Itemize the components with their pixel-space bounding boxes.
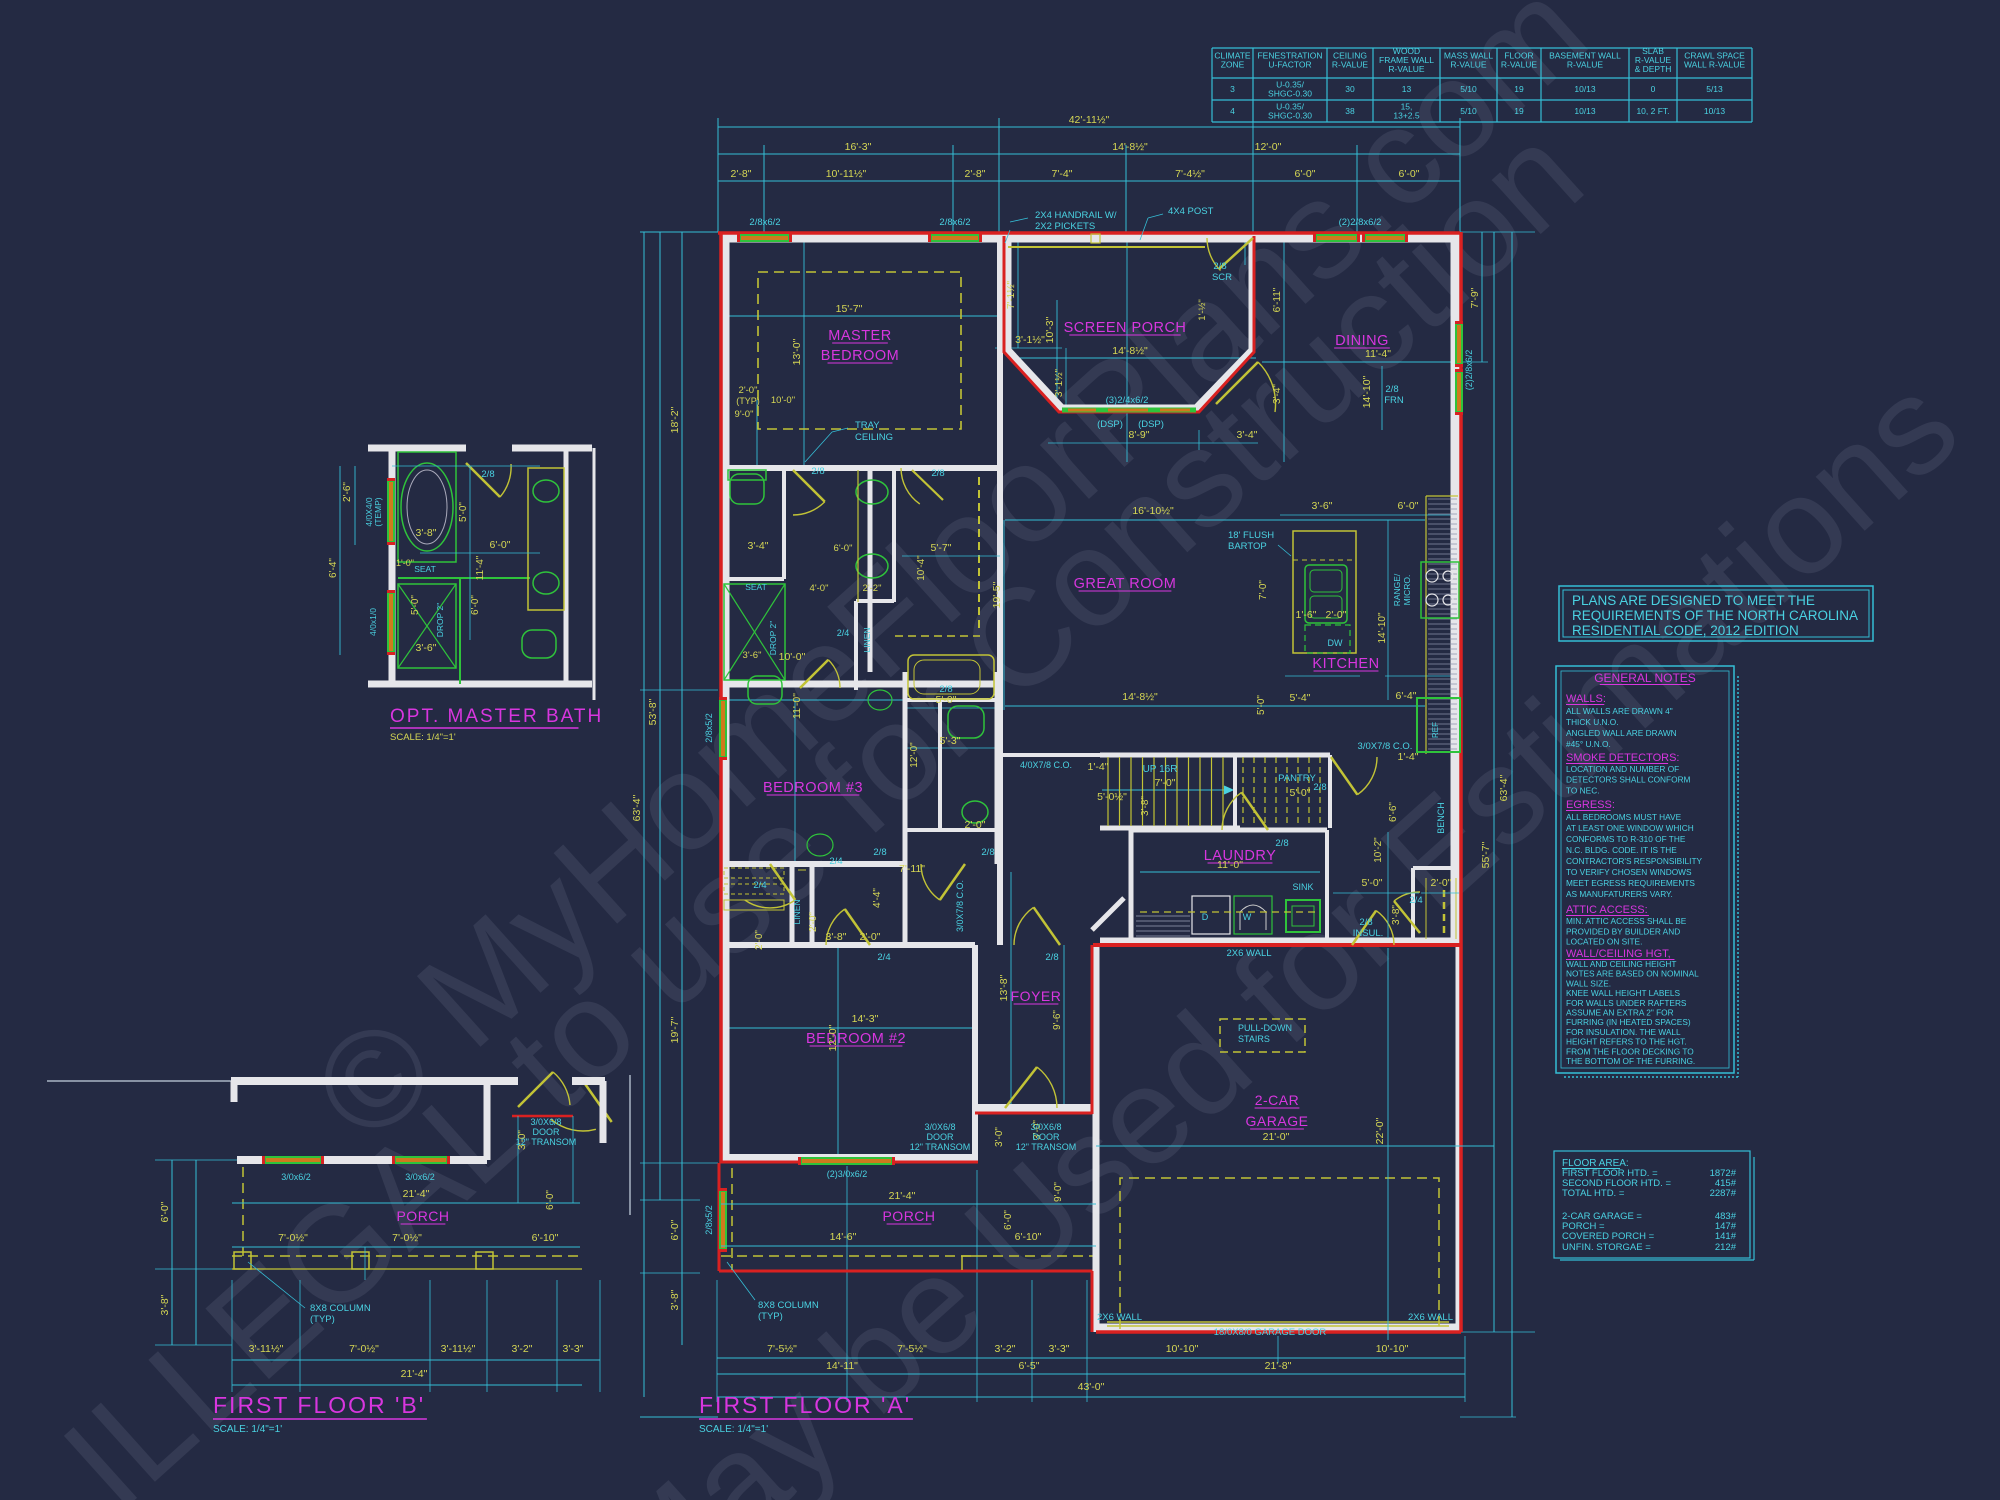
- svg-text:3'-11½": 3'-11½": [249, 1343, 284, 1355]
- svg-text:12'-0": 12'-0": [1255, 141, 1282, 153]
- svg-text:2/4: 2/4: [753, 880, 766, 891]
- svg-text:5'-7": 5'-7": [931, 542, 952, 554]
- svg-text:13+2.5: 13+2.5: [1393, 111, 1420, 121]
- svg-text:13'-8": 13'-8": [998, 974, 1010, 1001]
- svg-text:2'-0": 2'-0": [1431, 877, 1452, 889]
- svg-text:6'-10": 6'-10": [532, 1232, 559, 1244]
- svg-text:7'-0½": 7'-0½": [349, 1343, 379, 1355]
- svg-text:15'-7": 15'-7": [836, 303, 863, 315]
- svg-text:2/8: 2/8: [1045, 952, 1058, 963]
- svg-text:7'-1½": 7'-1½": [1006, 280, 1017, 309]
- svg-text:1'-4": 1'-4": [1088, 761, 1109, 773]
- svg-text:FOYER: FOYER: [1011, 988, 1062, 1004]
- svg-text:(2)3/0x6/2: (2)3/0x6/2: [827, 1169, 868, 1179]
- svg-text:NOTES ARE BASED ON NOMINAL: NOTES ARE BASED ON NOMINAL: [1566, 969, 1699, 979]
- svg-text:13: 13: [1402, 84, 1412, 94]
- svg-text:HEIGHT REFERS TO THE HGT.: HEIGHT REFERS TO THE HGT.: [1566, 1037, 1687, 1047]
- svg-text:2X4 HANDRAIL W/: 2X4 HANDRAIL W/: [1035, 210, 1117, 221]
- svg-text:42'-11½": 42'-11½": [1069, 114, 1110, 126]
- svg-text:5'-0": 5'-0": [458, 502, 469, 522]
- svg-text:2/8x6/2: 2/8x6/2: [749, 217, 780, 228]
- svg-text:STAIRS: STAIRS: [1238, 1034, 1270, 1044]
- svg-text:SEAT: SEAT: [745, 582, 767, 592]
- svg-text:GENERAL NOTES: GENERAL NOTES: [1594, 671, 1696, 685]
- svg-text:10'-4": 10'-4": [916, 555, 927, 581]
- svg-text:DW: DW: [1328, 638, 1343, 648]
- svg-text:22'-0": 22'-0": [1374, 1117, 1386, 1144]
- svg-text:GREAT ROOM: GREAT ROOM: [1074, 576, 1177, 592]
- svg-text:FOR WALLS UNDER RAFTERS: FOR WALLS UNDER RAFTERS: [1566, 998, 1687, 1008]
- svg-text:18/0X8/0 GARAGE DOOR: 18/0X8/0 GARAGE DOOR: [1214, 1327, 1327, 1338]
- svg-text:ASSUME AN EXTRA 2" FOR: ASSUME AN EXTRA 2" FOR: [1566, 1008, 1674, 1018]
- svg-text:6'-0": 6'-0": [1399, 168, 1420, 180]
- svg-text:MASTER: MASTER: [828, 328, 891, 344]
- svg-text:DINING: DINING: [1335, 333, 1389, 349]
- svg-text:2'-6": 2'-6": [342, 482, 353, 502]
- svg-text:FIRST FLOOR 'A': FIRST FLOOR 'A': [699, 1392, 911, 1418]
- svg-text:(TEMP): (TEMP): [373, 497, 383, 526]
- svg-text:2X2 PICKETS: 2X2 PICKETS: [1035, 221, 1095, 232]
- svg-text:8'-9": 8'-9": [1129, 429, 1150, 441]
- svg-text:4: 4: [1230, 106, 1235, 116]
- svg-text:1'-½": 1'-½": [1197, 299, 1208, 321]
- svg-text:2/4: 2/4: [829, 856, 842, 867]
- svg-text:PROVIDED BY BUILDER AND: PROVIDED BY BUILDER AND: [1566, 926, 1680, 936]
- svg-text:19: 19: [1514, 84, 1524, 94]
- svg-text:2/8: 2/8: [1313, 782, 1326, 793]
- svg-text:3/0X6/8: 3/0X6/8: [1030, 1122, 1061, 1132]
- svg-text:53'-8": 53'-8": [647, 698, 659, 725]
- svg-text:2/8: 2/8: [1275, 838, 1288, 849]
- svg-text:CONTRACTOR'S RESPONSIBILITY: CONTRACTOR'S RESPONSIBILITY: [1566, 856, 1703, 866]
- svg-text:(TYP): (TYP): [736, 396, 760, 406]
- svg-text:19'-7": 19'-7": [669, 1016, 681, 1043]
- svg-text:DROP 2": DROP 2": [768, 621, 778, 656]
- svg-text:BARTOP: BARTOP: [1228, 541, 1267, 552]
- svg-text:10'-11½": 10'-11½": [826, 168, 867, 180]
- svg-text:7'-0½": 7'-0½": [392, 1232, 422, 1244]
- svg-text:5'-0": 5'-0": [1256, 695, 1267, 715]
- svg-text:ALL WALLS ARE DRAWN 4": ALL WALLS ARE DRAWN 4": [1566, 706, 1673, 716]
- svg-text:BEDROOM #3: BEDROOM #3: [763, 780, 863, 796]
- svg-text:6'-0": 6'-0": [669, 1219, 681, 1240]
- svg-text:10'-2": 10'-2": [1373, 837, 1384, 863]
- svg-text:4X4 POST: 4X4 POST: [1168, 206, 1214, 217]
- svg-text:2'-2": 2'-2": [863, 583, 882, 594]
- svg-text:2X6 WALL: 2X6 WALL: [1226, 948, 1271, 959]
- svg-text:SCALE: 1/4"=1': SCALE: 1/4"=1': [699, 1424, 768, 1435]
- svg-text:11'-0": 11'-0": [791, 693, 803, 719]
- svg-text:6'-0": 6'-0": [1003, 1210, 1014, 1230]
- svg-text:14'-8½": 14'-8½": [1112, 141, 1148, 153]
- svg-text:30: 30: [1345, 84, 1355, 94]
- svg-text:14'-11": 14'-11": [826, 1360, 858, 1372]
- svg-text:2/8: 2/8: [811, 466, 824, 477]
- svg-text:6'-0": 6'-0": [545, 1190, 556, 1210]
- svg-text:CONFORMS TO R-310 OF THE: CONFORMS TO R-310 OF THE: [1566, 834, 1686, 844]
- svg-text:D: D: [1202, 912, 1209, 922]
- svg-text:ATTIC ACCESS:: ATTIC ACCESS:: [1566, 904, 1648, 916]
- svg-text:6'-0": 6'-0": [1295, 168, 1316, 180]
- svg-text:BEDROOM #2: BEDROOM #2: [806, 1031, 906, 1047]
- svg-text:KNEE WALL HEIGHT LABELS: KNEE WALL HEIGHT LABELS: [1566, 988, 1681, 998]
- svg-text:3'-8": 3'-8": [1391, 905, 1402, 925]
- svg-text:5'-0": 5'-0": [936, 694, 957, 706]
- svg-text:(2)2/8x6/2: (2)2/8x6/2: [1339, 217, 1382, 228]
- svg-text:GARAGE: GARAGE: [1246, 1113, 1309, 1129]
- svg-text:LINEN: LINEN: [862, 627, 872, 652]
- svg-text:SCALE: 1/4"=1': SCALE: 1/4"=1': [213, 1424, 282, 1435]
- svg-text:2/4: 2/4: [877, 952, 890, 963]
- svg-text:21'-0": 21'-0": [1263, 1131, 1290, 1143]
- svg-text:3'-6": 3'-6": [743, 650, 762, 661]
- svg-text:18'-2": 18'-2": [669, 406, 681, 433]
- svg-text:CEILING: CEILING: [855, 432, 893, 443]
- svg-text:6'-0": 6'-0": [159, 1201, 171, 1222]
- svg-text:14'-6": 14'-6": [830, 1231, 857, 1243]
- svg-text:7'-0": 7'-0": [1258, 580, 1269, 600]
- svg-text:(TYP): (TYP): [758, 1311, 783, 1322]
- svg-text:19: 19: [1514, 106, 1524, 116]
- svg-text:3'-2": 3'-2": [995, 1343, 1016, 1355]
- svg-text:5'-0": 5'-0": [1362, 877, 1383, 889]
- svg-text:SCR: SCR: [1212, 272, 1232, 283]
- svg-text:3/0x6/2: 3/0x6/2: [405, 1172, 435, 1182]
- svg-text:PANTRY: PANTRY: [1278, 773, 1316, 784]
- svg-text:7'-4½": 7'-4½": [1175, 168, 1205, 180]
- svg-text:3'-0": 3'-0": [994, 1127, 1005, 1147]
- svg-text:6'-5": 6'-5": [1019, 1360, 1040, 1372]
- svg-text:SEAT: SEAT: [414, 564, 436, 574]
- svg-text:(DSP): (DSP): [1097, 419, 1123, 430]
- svg-text:FOR INSULATION. THE WALL: FOR INSULATION. THE WALL: [1566, 1027, 1681, 1037]
- svg-text:2-CAR: 2-CAR: [1255, 1092, 1300, 1108]
- svg-text:16'-10½": 16'-10½": [1132, 505, 1174, 517]
- svg-text:10/13: 10/13: [1574, 84, 1596, 94]
- svg-text:2/8x6/2: 2/8x6/2: [939, 217, 970, 228]
- svg-text:63'-4": 63'-4": [631, 794, 643, 821]
- svg-text:11'-0": 11'-0": [1217, 859, 1243, 871]
- svg-text:(2)2/8x6/2: (2)2/8x6/2: [1464, 350, 1474, 391]
- svg-text:COVERED PORCH =: COVERED PORCH =: [1562, 1231, 1655, 1242]
- svg-text:10/13: 10/13: [1574, 106, 1596, 116]
- svg-text:14'-3": 14'-3": [852, 1013, 879, 1025]
- svg-text:OPT. MASTER BATH: OPT. MASTER BATH: [390, 706, 603, 727]
- svg-text:DOOR: DOOR: [927, 1132, 955, 1142]
- svg-text:10'-0": 10'-0": [779, 651, 806, 663]
- svg-text:EGRESS:: EGRESS:: [1566, 799, 1615, 811]
- svg-text:2/8: 2/8: [481, 469, 494, 480]
- svg-text:TO VERIFY CHOSEN WINDOWS: TO VERIFY CHOSEN WINDOWS: [1566, 867, 1692, 877]
- svg-text:UNFIN. STORGAE =: UNFIN. STORGAE =: [1562, 1242, 1651, 1253]
- svg-text:#45° U.N.O.: #45° U.N.O.: [1566, 739, 1611, 749]
- svg-text:LOCATED ON SITE.: LOCATED ON SITE.: [1566, 937, 1642, 947]
- svg-text:7'-9": 7'-9": [1469, 287, 1481, 308]
- svg-text:3/0X6/8: 3/0X6/8: [530, 1117, 561, 1127]
- svg-text:KITCHEN: KITCHEN: [1312, 656, 1379, 672]
- svg-text:6'-11": 6'-11": [1272, 287, 1283, 312]
- svg-text:5/10: 5/10: [1460, 84, 1477, 94]
- svg-text:ANGLED WALL ARE DRAWN: ANGLED WALL ARE DRAWN: [1566, 728, 1677, 738]
- svg-text:FRN: FRN: [1384, 395, 1404, 406]
- svg-text:FIRST FLOOR 'B': FIRST FLOOR 'B': [213, 1392, 425, 1418]
- svg-text:PORCH: PORCH: [396, 1208, 449, 1224]
- svg-text:7'-4": 7'-4": [1052, 168, 1073, 180]
- svg-text:2/8x5/2: 2/8x5/2: [704, 713, 714, 743]
- svg-text:UP 16R: UP 16R: [1143, 764, 1178, 775]
- svg-text:9'-6": 9'-6": [1052, 1010, 1063, 1030]
- svg-text:4/0X7/8 C.O.: 4/0X7/8 C.O.: [1020, 760, 1072, 770]
- svg-text:WALL R-VALUE: WALL R-VALUE: [1684, 60, 1745, 70]
- svg-text:3'-8": 3'-8": [826, 931, 847, 943]
- svg-text:AT LEAST ONE WINDOW WHICH: AT LEAST ONE WINDOW WHICH: [1566, 823, 1694, 833]
- svg-text:PORCH: PORCH: [882, 1208, 935, 1224]
- svg-text:13'-0": 13'-0": [791, 338, 803, 365]
- svg-text:FURRING (IN HEATED SPACES): FURRING (IN HEATED SPACES): [1566, 1017, 1691, 1027]
- svg-text:RESIDENTIAL CODE, 2012 EDITION: RESIDENTIAL CODE, 2012 EDITION: [1572, 623, 1799, 638]
- svg-text:19'-5": 19'-5": [991, 581, 1003, 608]
- svg-text:3'-8": 3'-8": [1140, 796, 1151, 816]
- svg-text:SHGC-0.30: SHGC-0.30: [1268, 89, 1312, 99]
- svg-text:SCREEN PORCH: SCREEN PORCH: [1064, 320, 1187, 336]
- svg-text:SMOKE DETECTORS:: SMOKE DETECTORS:: [1566, 752, 1679, 764]
- svg-text:R-VALUE: R-VALUE: [1567, 60, 1604, 70]
- svg-text:2/8: 2/8: [1385, 384, 1398, 395]
- svg-text:3: 3: [1230, 84, 1235, 94]
- svg-text:5'-0½": 5'-0½": [1097, 791, 1127, 803]
- svg-text:R-VALUE: R-VALUE: [1332, 60, 1369, 70]
- svg-text:1'-4": 1'-4": [1398, 751, 1419, 763]
- svg-text:21'-4": 21'-4": [403, 1188, 430, 1200]
- svg-text:7'-0": 7'-0": [1155, 777, 1176, 789]
- svg-text:6'-0": 6'-0": [470, 595, 481, 615]
- svg-text:14'-10": 14'-10": [1377, 612, 1388, 643]
- svg-text:7'-11": 7'-11": [899, 863, 925, 875]
- svg-text:6'-0": 6'-0": [1398, 500, 1419, 512]
- svg-text:6'-4": 6'-4": [328, 558, 339, 578]
- svg-text:2/8: 2/8: [1359, 917, 1372, 928]
- svg-text:2/8: 2/8: [1213, 261, 1226, 272]
- svg-text:3'-6": 3'-6": [416, 642, 437, 654]
- svg-text:10'-10": 10'-10": [1166, 1343, 1199, 1355]
- svg-text:MEET EGRESS REQUIREMENTS: MEET EGRESS REQUIREMENTS: [1566, 878, 1695, 888]
- svg-text:DROP 2": DROP 2": [435, 603, 445, 638]
- svg-text:6'-4": 6'-4": [1396, 690, 1417, 702]
- svg-text:2'-0": 2'-0": [754, 930, 765, 950]
- svg-text:9'-0": 9'-0": [735, 409, 754, 420]
- svg-text:1'-0": 1'-0": [396, 558, 414, 568]
- svg-text:INSUL.: INSUL.: [1353, 928, 1384, 939]
- svg-text:2'-8": 2'-8": [965, 168, 986, 180]
- svg-text:W: W: [1243, 912, 1252, 922]
- svg-text:212#: 212#: [1715, 1242, 1737, 1253]
- svg-text:3/0x6/2: 3/0x6/2: [281, 1172, 311, 1182]
- svg-text:THICK U.N.O.: THICK U.N.O.: [1566, 717, 1619, 727]
- svg-text:4/0x1/0: 4/0x1/0: [368, 608, 378, 636]
- svg-text:ZONE: ZONE: [1221, 60, 1245, 70]
- svg-text:2/4: 2/4: [1409, 895, 1422, 906]
- svg-text:21'-8": 21'-8": [1265, 1360, 1292, 1372]
- svg-text:55'-7": 55'-7": [1480, 841, 1492, 868]
- svg-text:3'-4": 3'-4": [1237, 429, 1258, 441]
- svg-text:9'-0": 9'-0": [1053, 1182, 1064, 1202]
- svg-text:N.C. BLDG. CODE. IT IS THE: N.C. BLDG. CODE. IT IS THE: [1566, 845, 1677, 855]
- svg-text:LOCATION AND NUMBER OF: LOCATION AND NUMBER OF: [1566, 764, 1679, 774]
- svg-text:6'-6": 6'-6": [1388, 802, 1399, 822]
- svg-text:R-VALUE: R-VALUE: [1388, 64, 1425, 74]
- svg-text:0: 0: [1651, 84, 1656, 94]
- svg-text:3'-3": 3'-3": [563, 1343, 584, 1355]
- svg-text:DETECTORS SHALL CONFORM: DETECTORS SHALL CONFORM: [1566, 775, 1691, 785]
- svg-text:10, 2 FT.: 10, 2 FT.: [1636, 106, 1669, 116]
- svg-text:8X8 COLUMN: 8X8 COLUMN: [758, 1300, 819, 1311]
- svg-text:21'-4": 21'-4": [401, 1368, 428, 1380]
- svg-text:10'-10": 10'-10": [1376, 1343, 1409, 1355]
- svg-text:2/8: 2/8: [873, 847, 886, 858]
- svg-text:3'-8": 3'-8": [416, 527, 437, 539]
- svg-text:TO NEC.: TO NEC.: [1566, 785, 1600, 795]
- svg-text:R-VALUE: R-VALUE: [1450, 60, 1487, 70]
- svg-text:4'-0": 4'-0": [810, 583, 829, 594]
- svg-text:BENCH: BENCH: [1436, 802, 1446, 834]
- svg-text:12" TRANSOM: 12" TRANSOM: [910, 1142, 971, 1152]
- svg-text:12'-0": 12'-0": [909, 742, 920, 768]
- svg-text:3'-8": 3'-8": [159, 1294, 171, 1315]
- svg-text:(TYP): (TYP): [310, 1314, 335, 1325]
- svg-text:7'-5½": 7'-5½": [767, 1343, 797, 1355]
- svg-text:SHGC-0.30: SHGC-0.30: [1268, 111, 1312, 121]
- svg-text:14'-8½": 14'-8½": [1112, 345, 1148, 357]
- svg-text:14'-8½": 14'-8½": [1122, 691, 1158, 703]
- svg-text:2/8: 2/8: [981, 847, 994, 858]
- svg-text:SCALE: 1/4"=1': SCALE: 1/4"=1': [390, 732, 456, 743]
- svg-text:4'-4": 4'-4": [872, 888, 883, 908]
- svg-text:38: 38: [1345, 106, 1355, 116]
- svg-text:2/8: 2/8: [939, 684, 952, 695]
- svg-text:DOOR: DOOR: [533, 1127, 561, 1137]
- svg-text:2'-0": 2'-0": [739, 385, 758, 396]
- svg-text:ALL BEDROOMS MUST HAVE: ALL BEDROOMS MUST HAVE: [1566, 812, 1682, 822]
- svg-text:PULL-DOWN: PULL-DOWN: [1238, 1023, 1292, 1033]
- svg-text:3/0X7/8 C.O.: 3/0X7/8 C.O.: [955, 880, 965, 932]
- svg-text:1'-6": 1'-6": [1296, 609, 1317, 621]
- svg-text:REQUIREMENTS OF THE NORTH CARO: REQUIREMENTS OF THE NORTH CAROLINA: [1572, 608, 1858, 623]
- svg-text:R-VALUE: R-VALUE: [1501, 60, 1538, 70]
- svg-text:SINK: SINK: [1292, 882, 1313, 892]
- svg-text:3'-6": 3'-6": [1312, 500, 1333, 512]
- svg-text:3/0X6/8: 3/0X6/8: [924, 1122, 955, 1132]
- svg-text:3/0X7/8 C.O.: 3/0X7/8 C.O.: [1358, 741, 1413, 752]
- svg-text:THE BOTTOM OF THE FURRING.: THE BOTTOM OF THE FURRING.: [1566, 1056, 1695, 1066]
- svg-text:2'-0": 2'-0": [808, 912, 819, 932]
- svg-text:REF: REF: [1431, 722, 1440, 738]
- svg-text:2/8: 2/8: [931, 468, 944, 479]
- svg-text:11'-4": 11'-4": [475, 555, 486, 580]
- svg-text:MIN. ATTIC ACCESS SHALL BE: MIN. ATTIC ACCESS SHALL BE: [1566, 916, 1687, 926]
- svg-text:5'-0": 5'-0": [410, 595, 421, 615]
- svg-text:3'-2": 3'-2": [512, 1343, 533, 1355]
- svg-text:6'-0": 6'-0": [834, 543, 853, 554]
- svg-text:5'-0": 5'-0": [1290, 787, 1311, 799]
- svg-text:18' FLUSH: 18' FLUSH: [1228, 530, 1274, 541]
- svg-text:8X8 COLUMN: 8X8 COLUMN: [310, 1303, 371, 1314]
- svg-text:5'-3": 5'-3": [940, 735, 961, 747]
- svg-text:6'-10": 6'-10": [1015, 1231, 1042, 1243]
- svg-text:5/13: 5/13: [1706, 84, 1723, 94]
- svg-text:2'-0": 2'-0": [965, 819, 986, 831]
- svg-text:DOOR: DOOR: [1033, 1132, 1061, 1142]
- svg-text:10'-3": 10'-3": [1044, 316, 1056, 343]
- svg-text:11'-4": 11'-4": [1365, 348, 1391, 360]
- svg-text:TRAY: TRAY: [855, 420, 880, 431]
- svg-text:(3)2/4x6/2: (3)2/4x6/2: [1106, 395, 1149, 406]
- svg-text:3'-4": 3'-4": [1272, 384, 1283, 404]
- svg-text:2'-0": 2'-0": [1326, 609, 1347, 621]
- svg-text:3'-11½": 3'-11½": [441, 1343, 476, 1355]
- svg-text:WALLS:: WALLS:: [1566, 693, 1606, 705]
- svg-text:3'-1½": 3'-1½": [1015, 334, 1045, 346]
- svg-text:2287#: 2287#: [1710, 1188, 1737, 1199]
- svg-text:& DEPTH: & DEPTH: [1635, 64, 1672, 74]
- svg-text:21'-4": 21'-4": [889, 1190, 916, 1202]
- svg-text:10'-0": 10'-0": [771, 395, 795, 406]
- svg-text:3'-3": 3'-3": [1049, 1343, 1070, 1355]
- svg-text:12'-0": 12'-0": [827, 1024, 839, 1051]
- svg-text:141#: 141#: [1715, 1231, 1737, 1242]
- svg-text:5/10: 5/10: [1460, 106, 1477, 116]
- svg-text:14'-10": 14'-10": [1361, 375, 1373, 408]
- svg-text:12" TRANSOM: 12" TRANSOM: [1016, 1142, 1077, 1152]
- svg-text:3'-4": 3'-4": [748, 540, 769, 552]
- svg-text:2'-0": 2'-0": [860, 931, 881, 943]
- svg-text:U-FACTOR: U-FACTOR: [1268, 60, 1311, 70]
- svg-text:WALL SIZE.: WALL SIZE.: [1566, 978, 1611, 988]
- svg-text:7'-0½": 7'-0½": [278, 1232, 308, 1244]
- svg-text:FROM THE FLOOR DECKING TO: FROM THE FLOOR DECKING TO: [1566, 1046, 1694, 1056]
- svg-text:(DSP): (DSP): [1138, 419, 1164, 430]
- svg-text:LINEN: LINEN: [792, 899, 802, 924]
- svg-text:5'-4": 5'-4": [1290, 692, 1311, 704]
- svg-text:7'-5½": 7'-5½": [897, 1343, 927, 1355]
- svg-text:43'-0": 43'-0": [1078, 1381, 1105, 1393]
- svg-text:63'-4": 63'-4": [1498, 774, 1510, 801]
- svg-text:BEDROOM: BEDROOM: [821, 348, 899, 364]
- svg-text:12" TRANSOM: 12" TRANSOM: [516, 1137, 577, 1147]
- svg-text:RANGE/: RANGE/: [1392, 573, 1402, 606]
- svg-text:TOTAL HTD. =: TOTAL HTD. =: [1562, 1188, 1625, 1199]
- svg-text:PLANS ARE DESIGNED TO MEET THE: PLANS ARE DESIGNED TO MEET THE: [1572, 593, 1815, 608]
- svg-text:2'-8": 2'-8": [731, 168, 752, 180]
- svg-text:2/4: 2/4: [837, 628, 850, 638]
- svg-text:AS MANUFATURERS VARY.: AS MANUFATURERS VARY.: [1566, 889, 1673, 899]
- svg-text:10/13: 10/13: [1704, 106, 1726, 116]
- svg-text:2/8x5/2: 2/8x5/2: [704, 1205, 714, 1235]
- svg-text:2X6 WALL: 2X6 WALL: [1408, 1312, 1453, 1323]
- svg-text:MICRO.: MICRO.: [1402, 575, 1412, 606]
- svg-text:3'-1½": 3'-1½": [1054, 368, 1065, 397]
- svg-text:WALL AND CEILING HEIGHT: WALL AND CEILING HEIGHT: [1566, 959, 1677, 969]
- svg-text:16'-3": 16'-3": [845, 141, 872, 153]
- svg-text:3'-8": 3'-8": [669, 1289, 681, 1310]
- svg-text:6'-0": 6'-0": [490, 539, 511, 551]
